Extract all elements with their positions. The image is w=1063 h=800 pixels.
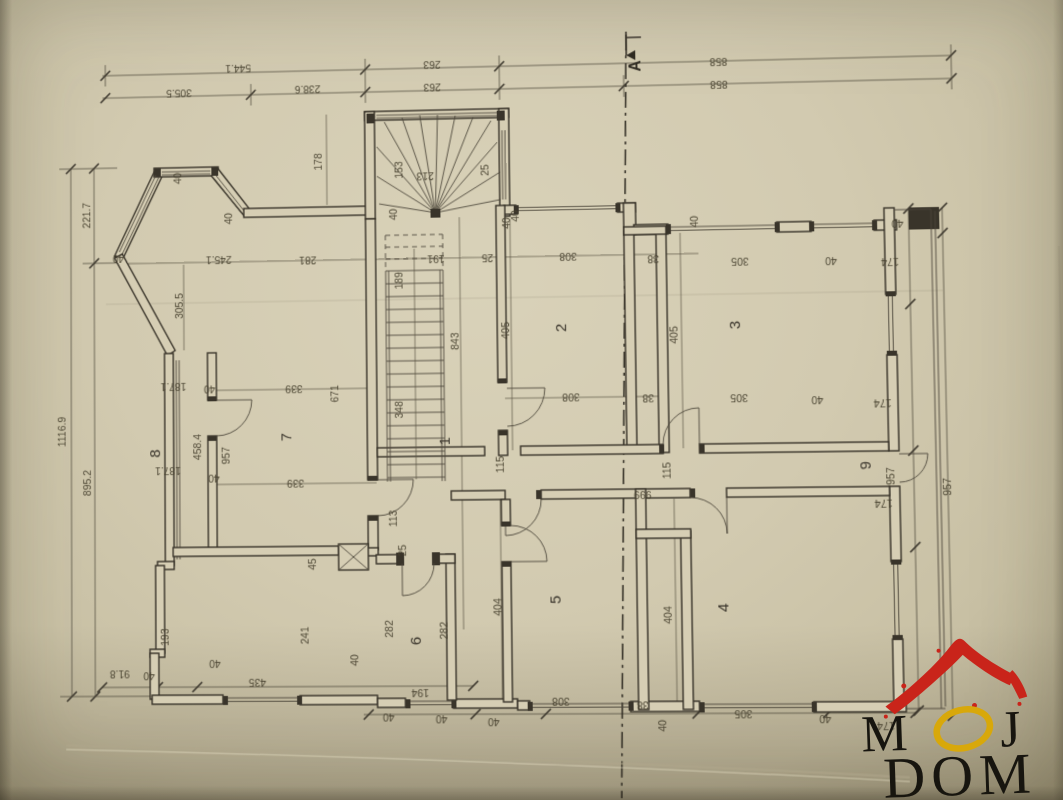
dimension-label: 189 (394, 272, 405, 290)
dimension-label: 40 (208, 472, 220, 483)
dimension-label: 245.1 (206, 253, 232, 264)
dimension-label: 957 (886, 467, 898, 485)
dimension-label: 957 (222, 447, 233, 465)
photo-edge-shadow-left (0, 0, 12, 800)
room-number: 9 (858, 461, 875, 470)
dimension-label: 348 (395, 401, 406, 419)
dimension-label: 308 (562, 390, 580, 401)
dimension-label: 91.8 (110, 667, 130, 678)
dimension-label: 308 (559, 250, 577, 261)
floor-plan-photo: 544.1263858305.5238.62638581116.9221.789… (0, 0, 1063, 800)
dimension-label: 405 (501, 321, 512, 339)
dimension-label: 25 (398, 544, 409, 556)
dimension-label: 221.7 (82, 202, 93, 228)
dimension-label: 40 (502, 217, 513, 229)
dimension-label: 25 (481, 251, 493, 262)
paper-artifacts (106, 246, 1063, 703)
dimension-label: 174 (877, 719, 895, 730)
dimension-label: 174 (881, 255, 899, 267)
dimension-label: 113 (389, 510, 400, 527)
dimension-label: 671 (330, 385, 341, 403)
dimension-label: 1116.9 (58, 417, 69, 447)
dimension-label: 282 (385, 620, 396, 638)
dimension-label: 153 (394, 161, 405, 179)
floor-plan-drawing: 544.1263858305.5238.62638581116.9221.789… (9, 0, 1063, 800)
room-number: 2 (554, 323, 570, 332)
dimension-label: 40 (350, 654, 361, 666)
dimension-label: 40 (488, 715, 500, 726)
dimension-label: 843 (450, 332, 461, 350)
dimension-lines (59, 44, 971, 723)
dimension-label: 40 (819, 712, 831, 723)
room-number: 7 (279, 433, 295, 441)
dimension-label: 174 (874, 496, 892, 508)
dimension-label: 858 (709, 55, 727, 66)
dimension-label: 38 (642, 391, 654, 402)
dimension-label: 38 (636, 698, 648, 709)
room-number: 8 (148, 449, 164, 457)
dimension-label: 38 (647, 252, 659, 263)
dimension-label: 404 (663, 606, 675, 624)
walls (114, 99, 950, 715)
dimension-label: 281 (299, 253, 316, 264)
dimension-label: 999 (634, 488, 652, 499)
dimension-label: 404 (493, 598, 504, 616)
dimension-label: 187.1 (160, 380, 186, 391)
dimension-label: 305 (734, 707, 752, 718)
dimension-label: 115 (662, 462, 674, 479)
dimension-label: 178 (314, 153, 325, 171)
room-number: 1 (438, 437, 454, 446)
dimension-label: 40 (113, 252, 125, 263)
dimension-label: 40 (825, 254, 837, 265)
room-number: 3 (728, 321, 745, 330)
dimension-label: 115 (496, 456, 507, 473)
dimension-label: 435 (249, 676, 267, 687)
dimension-label: 174 (873, 396, 891, 408)
paper-crease (66, 744, 910, 783)
dimension-label: 40 (204, 382, 216, 393)
dimension-label: 40 (891, 217, 903, 228)
dimension-label: 241 (300, 626, 311, 644)
dimension-label: 193 (161, 628, 172, 646)
dimension-label: 305 (731, 255, 749, 266)
dimension-label: 238.6 (294, 82, 320, 94)
dimension-label: 40 (209, 657, 221, 668)
dimension-label: 858 (710, 78, 728, 89)
dimension-label: 895.2 (83, 470, 94, 496)
dimension-label: 282 (440, 621, 451, 639)
room-number: 6 (409, 637, 425, 645)
dimension-label: 40 (143, 669, 155, 680)
dimension-label: 194 (411, 686, 429, 697)
section-marker-letter: A (627, 60, 644, 72)
photo-edge-shadow-bottom (0, 786, 1063, 800)
dimension-label: 191 (427, 252, 445, 263)
dimension-label: 40 (690, 215, 701, 227)
dimension-label: 308 (552, 695, 570, 706)
room-number: 5 (548, 595, 564, 604)
dimension-label: 213 (416, 169, 434, 180)
dimension-label: 40 (658, 720, 669, 732)
dimension-label: 405 (669, 326, 680, 344)
dimension-label: 40 (173, 172, 184, 184)
dimension-label: 40 (224, 213, 235, 225)
dimension-label: 40 (389, 208, 400, 220)
room-number-labels: 123456789 (148, 319, 879, 647)
section-label: A (627, 60, 644, 72)
dimension-label: 305.5 (175, 293, 186, 319)
dimension-label: 187.1 (155, 464, 181, 475)
dimension-label: 339 (287, 477, 305, 488)
dimension-label: 263 (423, 58, 441, 69)
dimension-label: 25 (480, 164, 491, 176)
dimension-label: 40 (435, 712, 447, 723)
dimension-label: 263 (423, 80, 441, 91)
photo-edge-shadow-right (1053, 0, 1063, 800)
dimension-label: 40 (811, 393, 823, 404)
dimension-label: 40 (383, 710, 395, 721)
dimension-label: 305 (730, 391, 748, 402)
plan-sheet: 544.1263858305.5238.62638581116.9221.789… (9, 0, 1063, 800)
dimension-label: 339 (285, 382, 303, 393)
dimension-label: 45 (308, 558, 319, 570)
dimension-label: 957 (943, 478, 955, 496)
dimension-label: 458.4 (193, 434, 204, 460)
dimension-label: 305.5 (166, 86, 192, 97)
room-number: 4 (716, 603, 733, 612)
dimension-label: 544.1 (225, 62, 251, 74)
